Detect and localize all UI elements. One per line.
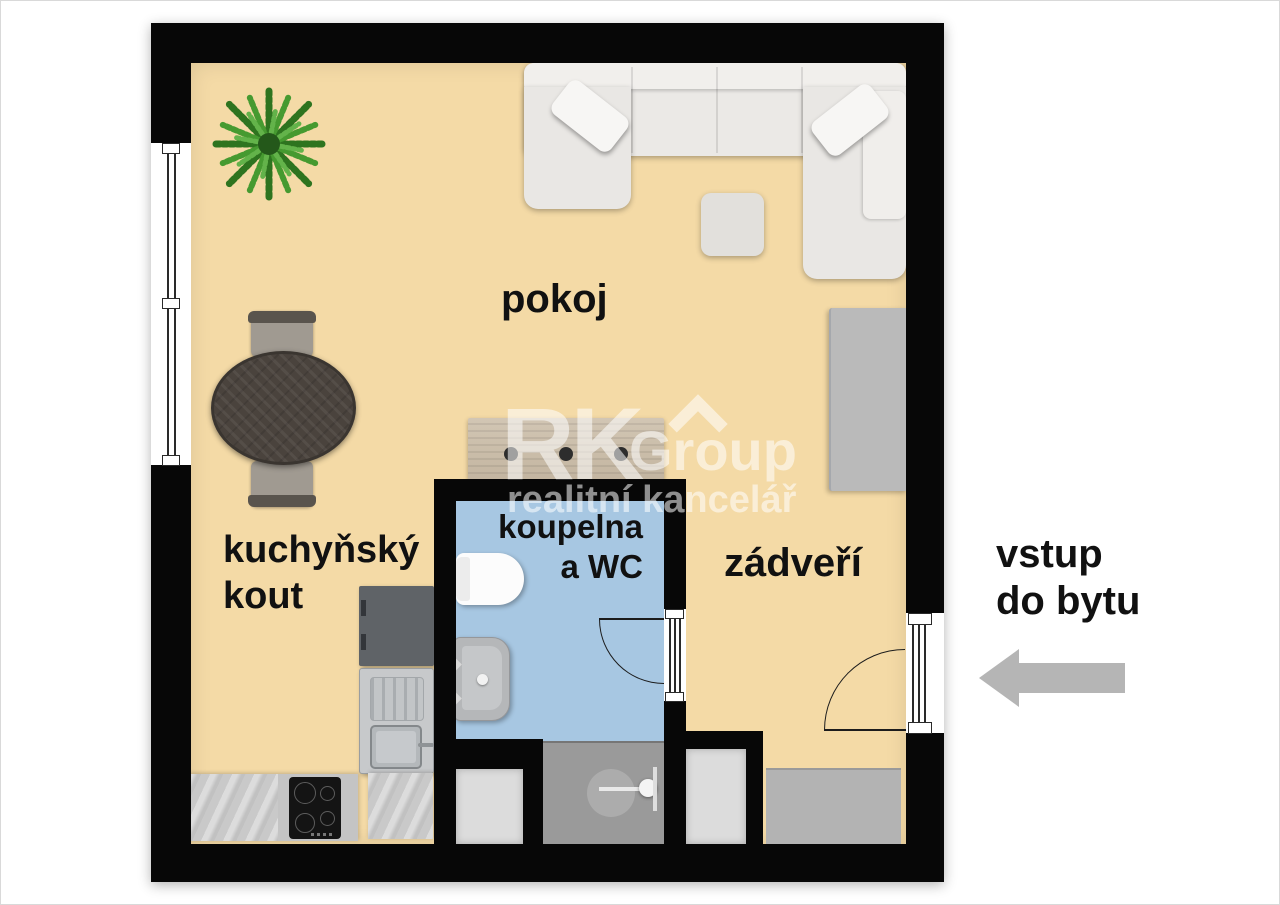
wall-bottom [151, 844, 944, 882]
bathroom-label-line2: a WC [561, 548, 644, 585]
doormat [766, 768, 901, 846]
kitchen-counter-2 [368, 773, 433, 839]
floorplan-image: RK Group realitní kancelář pokoj kuchyňs… [0, 0, 1280, 905]
kitchen-label-line1: kuchyňský [223, 529, 419, 571]
bathroom-wall-bottom-left [434, 739, 543, 769]
sink-faucet [477, 674, 488, 685]
entrance-arrow-icon [1017, 663, 1125, 693]
bathroom-wall-left [434, 479, 456, 844]
ottoman [701, 193, 764, 256]
room-label-kitchen: kuchyňskýkout [223, 527, 419, 619]
entrance-arrow-head [979, 649, 1019, 707]
sink-faucet [418, 743, 434, 747]
shower-pipe [599, 787, 643, 791]
window-left [151, 143, 191, 465]
shaft-right [686, 749, 746, 844]
shower-drain-area [587, 769, 635, 817]
room-label-living: pokoj [501, 277, 608, 322]
bathroom-door-frame [664, 609, 686, 701]
room-label-bathroom: koupelnaa WC [461, 507, 643, 587]
wall-left-lower [151, 465, 191, 882]
entrance-note-line2: do bytu [996, 579, 1140, 623]
shower-rail [653, 767, 657, 811]
dining-chair-bottom [251, 461, 313, 507]
shaft-left [456, 769, 523, 844]
fridge-handle [361, 634, 366, 650]
shower-wall-left [523, 769, 543, 844]
cooktop [289, 777, 341, 839]
watermark-name: Group [629, 423, 797, 479]
entrance-note-line1: vstup [996, 532, 1103, 576]
wall-left-upper [151, 23, 191, 143]
room-label-hallway: zádveří [724, 541, 862, 586]
entrance-door-frame [906, 613, 944, 733]
entrance-note: vstupdo bytu [996, 531, 1140, 625]
kitchen-sink-unit [359, 668, 434, 774]
sofa-seam [631, 67, 633, 153]
kitchen-label-line2: kout [223, 575, 303, 617]
sofa-seam [716, 67, 718, 153]
wall-right-lower [906, 733, 944, 882]
bathroom-label-line1: koupelna [498, 508, 643, 545]
bathroom-sink [454, 637, 510, 721]
plant-icon [204, 79, 334, 209]
dining-table [211, 351, 356, 465]
sink-drainboard [370, 677, 424, 721]
sink-basin [370, 725, 422, 769]
bathroom-wall-right-lower [664, 701, 686, 844]
wardrobe [829, 308, 908, 491]
wall-top [151, 23, 944, 63]
shaft-right-wall-side [746, 731, 763, 844]
wall-right-upper [906, 23, 944, 613]
